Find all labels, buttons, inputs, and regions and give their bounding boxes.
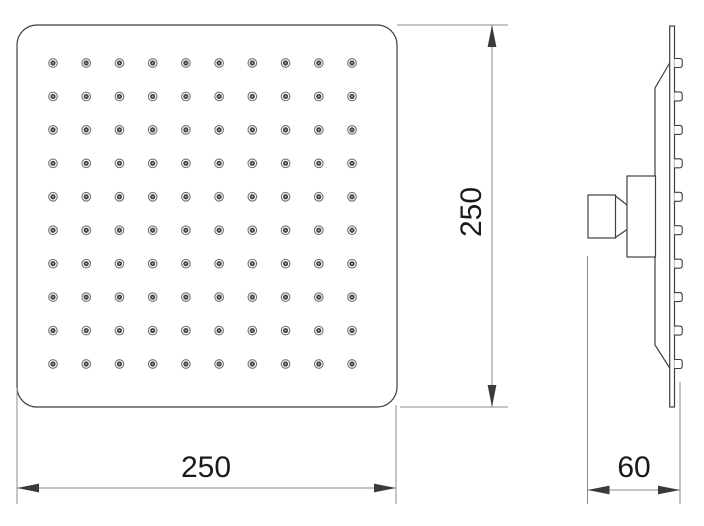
nozzle-icon [115,326,124,335]
arrow-left-icon [588,486,610,495]
nozzle-icon [281,59,290,68]
nozzle-icon [82,59,91,68]
nozzle-icon [215,360,224,369]
nozzle-icon [82,326,91,335]
nozzle-icon [115,360,124,369]
nozzle-icon [348,259,357,268]
nozzle-icon [82,126,91,135]
inlet-connector [588,195,616,238]
side-view [588,26,682,407]
nozzle-icon [314,360,323,369]
nozzle-tip-icon [674,92,682,101]
nozzle-icon [115,159,124,168]
nozzle-icon [49,360,58,369]
nozzle-icon [182,59,191,68]
arrow-down-icon [488,385,497,407]
front-view [17,25,397,407]
nozzle-icon [348,92,357,101]
nozzle-icon [314,226,323,235]
nozzle-icon [248,92,257,101]
nozzle-icon [248,159,257,168]
nozzle-icon [49,159,58,168]
nozzle-icon [348,360,357,369]
nozzle-icon [215,159,224,168]
height-dimension-label: 250 [455,187,488,237]
nozzle-icon [281,159,290,168]
nozzle-icon [281,259,290,268]
dimension-depth: 60 [588,256,681,504]
nozzle-icon [248,326,257,335]
nozzle-icon [49,226,58,235]
nozzle-icon [215,226,224,235]
nozzle-icon [82,192,91,201]
nozzle-icon [182,126,191,135]
nozzle-icon [248,192,257,201]
nozzle-icon [182,259,191,268]
nozzle-icon [314,59,323,68]
nozzle-icon [281,92,290,101]
nozzle-icon [215,293,224,302]
nozzle-icon [314,159,323,168]
nozzle-icon [348,59,357,68]
nozzle-icon [115,59,124,68]
nozzle-icon [148,226,157,235]
nozzle-icon [148,92,157,101]
nozzle-icon [281,226,290,235]
connector-neck [616,196,628,238]
nozzle-tip-icon [674,259,682,268]
nozzle-icon [314,259,323,268]
nozzle-icon [148,360,157,369]
nozzle-tip-icon [674,360,682,369]
nozzle-icon [49,293,58,302]
nozzle-icon [115,192,124,201]
nozzle-icon [182,92,191,101]
arrow-right-icon [374,484,396,493]
nozzle-icon [348,159,357,168]
nozzle-icon [248,226,257,235]
nozzle-icon [215,126,224,135]
nozzle-tip-icon [674,293,682,302]
nozzle-icon [215,192,224,201]
nozzle-icon [148,259,157,268]
nozzle-icon [115,259,124,268]
nozzle-icon [49,126,58,135]
nozzle-icon [82,92,91,101]
nozzle-icon [248,59,257,68]
nozzle-icon [182,192,191,201]
nozzle-icon [82,159,91,168]
nozzle-icon [348,192,357,201]
nozzle-icon [182,159,191,168]
nozzle-icon [215,259,224,268]
nozzle-icon [281,192,290,201]
nozzle-icon [82,226,91,235]
side-nozzle-tips [674,59,682,369]
width-dimension-label: 250 [181,451,231,484]
nozzle-icon [314,92,323,101]
shower-head-drawing: 250 250 [0,0,704,526]
nozzle-icon [248,126,257,135]
nozzle-icon [281,293,290,302]
nozzle-tip-icon [674,326,682,335]
nozzle-icon [248,259,257,268]
front-panel [17,25,397,407]
nozzle-icon [148,59,157,68]
nozzle-tip-icon [674,159,682,168]
technical-drawing-canvas: 250 250 [0,0,704,526]
arrow-up-icon [488,25,497,47]
nozzle-icon [82,293,91,302]
nozzle-icon [49,59,58,68]
nozzle-icon [348,126,357,135]
nozzle-icon [314,293,323,302]
nozzle-icon [49,326,58,335]
side-back-body [655,63,670,368]
nozzle-icon [248,293,257,302]
nozzle-icon [348,326,357,335]
nozzle-icon [82,259,91,268]
nozzle-tip-icon [674,226,682,235]
nozzle-icon [248,360,257,369]
nozzle-tip-icon [674,125,682,134]
nozzle-icon [182,293,191,302]
nozzle-icon [215,59,224,68]
nozzle-icon [215,326,224,335]
nozzle-icon [115,92,124,101]
mounting-bracket [627,176,656,257]
nozzle-icon [281,360,290,369]
nozzle-icon [115,126,124,135]
nozzle-icon [281,326,290,335]
nozzle-icon [49,192,58,201]
nozzle-icon [215,92,224,101]
face-plate [670,26,675,407]
nozzle-tip-icon [674,192,682,201]
depth-dimension-label: 60 [617,451,650,484]
nozzle-icon [148,326,157,335]
nozzle-icon [148,293,157,302]
arrow-right-icon [658,486,680,495]
nozzle-tip-icon [674,59,682,68]
nozzle-icon [49,92,58,101]
nozzle-icon [314,326,323,335]
nozzle-icon [49,259,58,268]
nozzle-icon [182,226,191,235]
nozzle-icon [115,293,124,302]
nozzle-icon [115,226,124,235]
nozzle-icon [82,360,91,369]
nozzle-icon [182,360,191,369]
nozzle-icon [348,293,357,302]
nozzle-icon [182,326,191,335]
dimension-height: 250 [397,25,508,407]
nozzle-icon [314,192,323,201]
arrow-left-icon [17,484,39,493]
nozzle-icon [148,159,157,168]
nozzle-icon [348,226,357,235]
nozzle-icon [314,126,323,135]
nozzle-icon [148,126,157,135]
nozzle-icon [148,192,157,201]
nozzle-icon [281,126,290,135]
